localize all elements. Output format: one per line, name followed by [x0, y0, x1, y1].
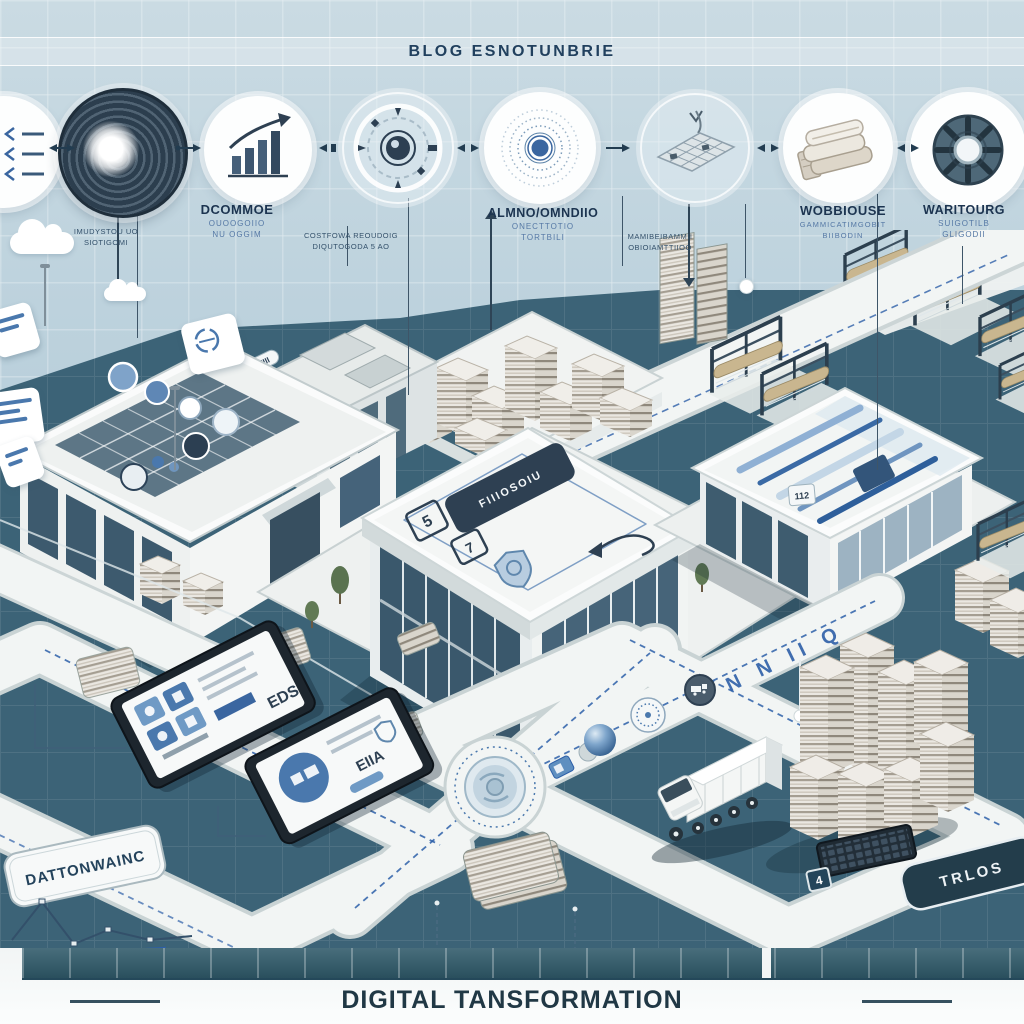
flow-arrow-icon — [175, 142, 201, 154]
connector-line — [137, 198, 138, 338]
caption-2: COSTFOWA REOUDOIG DIQUTOGODA 5 AO — [290, 230, 412, 253]
caption-3-line1: MAMIBEIBAMMII — [604, 231, 716, 242]
connector-line — [962, 246, 963, 304]
drop-line-dot — [435, 901, 440, 906]
trailer-rear — [766, 737, 782, 790]
label-automation-title: ALMNO/OMNDIIO — [468, 206, 618, 220]
fabric-stack-icon — [783, 93, 893, 203]
number-badge: 4 — [806, 867, 832, 891]
label-warehouse-2-title: WARITOURG — [905, 203, 1023, 217]
flow-arrow-icon — [604, 142, 630, 154]
caption-1: IMUDYSTOU UO SIOTIGOMI — [56, 226, 156, 249]
label-ecommerce-title: DCOMMOE — [173, 202, 301, 217]
flow-arrow-icon — [455, 142, 481, 154]
page-title: BLOG ESNOTUNBRIE — [0, 38, 1024, 65]
caption-1-line2: SIOTIGOMI — [56, 237, 156, 248]
label-warehouse-2-sub1: SUIGOTILB — [905, 219, 1023, 228]
gauge-glyph — [342, 92, 454, 204]
isometric-scene: EIII — [0, 230, 1024, 955]
spiral-portal-icon — [58, 88, 188, 218]
map-pin-icon — [739, 279, 754, 294]
scribble-glyph — [186, 320, 229, 360]
banner-dash-right — [862, 1000, 952, 1003]
label-ecommerce-sub1: OUOOGOIIO — [173, 219, 301, 228]
cloud-icon — [104, 287, 146, 301]
label-warehouse-2-sub2: GLIGODII — [905, 230, 1023, 239]
label-warehouse-sub1: GAMMICATIMGOBIT — [772, 220, 914, 229]
keyboard-circle-icon — [640, 93, 750, 203]
arrow-down-icon — [683, 278, 695, 287]
label-automation: ALMNO/OMNDIIO ONECTTOTIO TORTBILI — [468, 206, 618, 242]
gauge-icon — [342, 92, 454, 204]
label-ecommerce: DCOMMOE OUOOGOIIO NU OGGIM — [173, 202, 301, 239]
label-automation-sub2: TORTBILI — [468, 233, 618, 242]
label-warehouse-2: WARITOURG SUIGOTILB GLIGODII — [905, 203, 1023, 239]
flow-arrow-icon — [895, 142, 921, 154]
connector-line — [408, 198, 409, 395]
banner-grid-bar — [22, 948, 1024, 980]
caption-1-line1: IMUDYSTOU UO — [56, 226, 156, 237]
lamp-post — [44, 268, 46, 326]
label-warehouse-title: WOBBIOUSE — [772, 203, 914, 218]
caption-2-line2: DIQUTOGODA 5 AO — [290, 241, 412, 252]
connector-line — [745, 204, 746, 278]
spiral-core-glow — [83, 121, 139, 177]
keyboard-glyph — [640, 93, 750, 203]
sphere-icon — [584, 724, 616, 756]
dotted-coin-icon — [631, 698, 665, 732]
flow-arrow-icon — [755, 142, 781, 154]
caption-3: MAMIBEIBAMMII OBIOIAMTTIIOO — [604, 231, 716, 254]
roundabout-medallion — [445, 737, 545, 837]
growth-chart-icon — [204, 96, 312, 204]
label-warehouse-sub2: BIIBODIN — [772, 231, 914, 240]
label-warehouse: WOBBIOUSE GAMMICATIMGOBIT BIIBODIN — [772, 203, 914, 240]
warehouse-badge-text: 112 — [794, 490, 809, 501]
caption-2-line1: COSTFOWA REOUDOIG — [290, 230, 412, 241]
target-rings-icon — [484, 92, 596, 204]
flow-arrow-icon — [49, 142, 75, 154]
target-rings-glyph — [484, 92, 596, 204]
gear-glyph — [910, 92, 1024, 208]
gear-icon — [910, 92, 1024, 208]
bottom-banner: DIGITAL TANSFORMATION — [0, 948, 1024, 1024]
label-automation-sub1: ONECTTOTIO — [468, 222, 618, 231]
digital-transformation-infographic: BLOG ESNOTUNBRIE — [0, 0, 1024, 1024]
banner-bar-notch — [762, 948, 771, 978]
header-band: BLOG ESNOTUNBRIE — [0, 37, 1024, 66]
banner-dash-left — [70, 1000, 160, 1003]
caption-3-line2: OBIOIAMTTIIOO — [604, 242, 716, 253]
drop-line-dot — [573, 907, 578, 912]
fabric-stack-glyph — [783, 93, 893, 203]
label-ecommerce-sub2: NU OGGIM — [173, 230, 301, 239]
lamp-post — [174, 390, 176, 470]
flow-arrow-icon — [317, 142, 343, 154]
warehouse-badge: 112 — [788, 484, 816, 506]
truck-coin-icon — [685, 675, 715, 705]
growth-chart-glyph — [204, 96, 312, 204]
